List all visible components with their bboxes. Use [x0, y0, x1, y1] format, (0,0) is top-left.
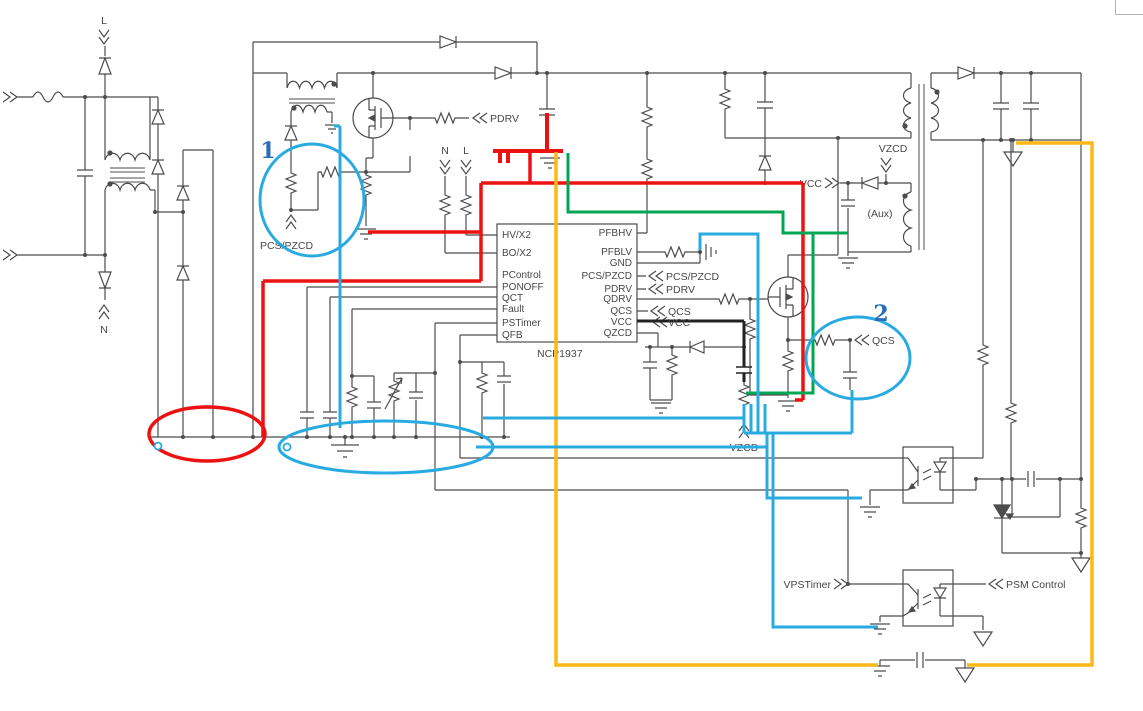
- main-transformer: [903, 84, 939, 250]
- pin-label: PControl: [502, 270, 541, 281]
- circuit-schematic: L N N L PDRV PCS/PZCD PCS/PZCD PDRV QCS …: [0, 0, 1143, 711]
- qcs-sense-connector-icon: [855, 335, 869, 345]
- pin-label: QFB: [502, 330, 523, 341]
- sense-n-label: N: [441, 145, 449, 157]
- secondary-ground-symbols: [956, 152, 1090, 682]
- vzcd-aux-connector-icon: [881, 158, 891, 172]
- ic-part-number: NCP1937: [537, 348, 583, 360]
- pin-label: GND: [610, 258, 632, 269]
- sense-l-connector-icon: [461, 160, 471, 174]
- sense-n-connector-icon: [440, 160, 450, 174]
- qcs-sense-label: QCS: [872, 335, 895, 347]
- pin-label: PSTimer: [502, 318, 541, 329]
- window-edge-artifact: [1115, 0, 1143, 15]
- schematic-page: L N N L PDRV PCS/PZCD PCS/PZCD PDRV QCS …: [0, 0, 1143, 711]
- input-neutral-connector-icon: [3, 250, 17, 260]
- optocoupler-feedback: [903, 447, 953, 503]
- conn-pcs-pzcd-icon: [649, 271, 663, 281]
- pin-label: QZCD: [604, 328, 632, 339]
- fuse: [33, 92, 63, 102]
- pin-label: PONOFF: [502, 282, 544, 293]
- red-ground-ellipse: [149, 407, 265, 461]
- blue-bundle: [483, 390, 852, 433]
- net-marker-circle: [284, 444, 291, 451]
- mains-line-label: L: [101, 15, 107, 27]
- tl431: [994, 505, 1013, 519]
- vcc-supply-connector-icon: [825, 178, 839, 188]
- input-line-connector-icon: [3, 92, 17, 102]
- blue-trace-gnd: [700, 234, 758, 404]
- neutral-connector-icon: [99, 305, 109, 319]
- pfc-mosfet: [353, 98, 393, 138]
- blue-trace-opto: [476, 433, 878, 627]
- pdrv-connector-icon: [473, 113, 487, 123]
- pin-label: BO/X2: [502, 248, 532, 259]
- pcs-pzcd-connector-icon: [286, 215, 296, 229]
- conn-vcc-label: VCC: [668, 317, 691, 329]
- net-marker-circle: [155, 443, 162, 450]
- pfc-choke: [287, 81, 337, 112]
- pin-label: PFBHV: [599, 228, 633, 239]
- vzcd-aux-label: VZCD: [879, 143, 908, 155]
- red-routing-path: [263, 151, 803, 437]
- capacitors: [77, 102, 1039, 668]
- marker-1: 1: [260, 138, 275, 164]
- vpstimer-label: VPSTimer: [784, 579, 832, 591]
- blue-ground-ellipse: [279, 421, 493, 473]
- junction-dots: [83, 71, 1083, 586]
- line-connector-icon: [99, 30, 109, 44]
- pin-label: VCC: [611, 317, 632, 328]
- diodes: [99, 36, 974, 353]
- psm-control-connector-icon: [989, 579, 1003, 589]
- conn-pdrv-label: PDRV: [666, 284, 695, 296]
- optocoupler-psm: [903, 570, 953, 626]
- pin-label: Fault: [502, 304, 524, 315]
- conn-pdrv-icon: [649, 284, 663, 294]
- conn-pcs-pzcd-label: PCS/PZCD: [666, 271, 720, 283]
- vpstimer-connector-icon: [834, 579, 848, 589]
- sense-l-label: L: [463, 145, 469, 157]
- pin-label: QCS: [610, 306, 632, 317]
- pin-label: PCS/PZCD: [581, 271, 632, 282]
- pin-label: HV/X2: [502, 230, 531, 241]
- psm-control-label: PSM Control: [1006, 579, 1066, 591]
- pin-label: QDRV: [603, 294, 632, 305]
- conn-qcs-icon: [651, 306, 665, 316]
- blue-highlight-traces: [155, 126, 911, 627]
- marker-2: 2: [873, 301, 888, 327]
- ic-pin-labels: HV/X2 BO/X2 PControl PONOFF QCT Fault PS…: [502, 228, 632, 341]
- mains-neutral-label: N: [100, 324, 108, 336]
- aux-winding-label: (Aux): [867, 208, 892, 220]
- text-labels: L N N L PDRV PCS/PZCD PCS/PZCD PDRV QCS …: [100, 15, 1065, 591]
- annotation-circle-2: [806, 317, 910, 399]
- pin-label: QCT: [502, 293, 523, 304]
- pin-label: PFBLV: [601, 247, 632, 258]
- pfc-drive-label: PDRV: [490, 113, 519, 125]
- common-mode-choke: [105, 151, 150, 190]
- ground-symbols: [325, 125, 890, 676]
